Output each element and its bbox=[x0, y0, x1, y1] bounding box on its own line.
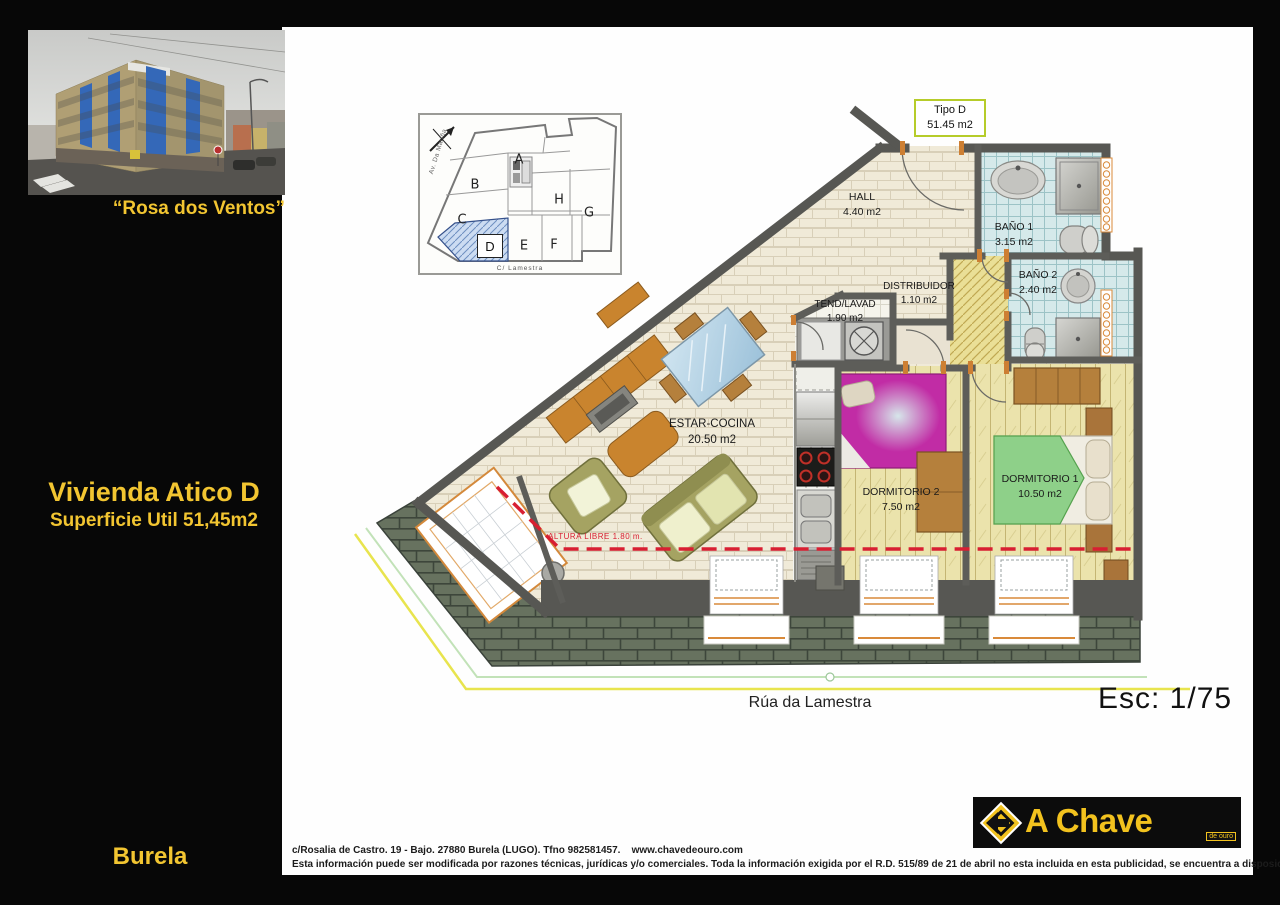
brochure-page: “Rosa dos Ventos” Vivienda Atico D Super… bbox=[0, 0, 1280, 905]
keyplan-street-lamestra: C/ Lamestra bbox=[497, 265, 543, 272]
listing-title-block: Vivienda Atico D Superficie Util 51,45m2 bbox=[30, 476, 278, 532]
distribuidor-name: DISTRIBUIDOR bbox=[883, 280, 955, 294]
street-label: Rúa da Lamestra bbox=[749, 694, 872, 712]
room-label-bano1: BAÑO 1 3.15 m2 bbox=[995, 220, 1034, 249]
distribuidor-area: 1.10 m2 bbox=[883, 294, 955, 308]
keyplan-unit-d: D bbox=[477, 234, 503, 258]
scale-label: Esc: 1/75 bbox=[1098, 682, 1232, 716]
room-label-tendedero: TEND/LAVAD 1.90 m2 bbox=[814, 298, 875, 326]
tipo-box: Tipo D 51.45 m2 bbox=[914, 99, 986, 137]
photo-caption: “Rosa dos Ventos” bbox=[28, 198, 285, 220]
dormitorio2-name: DORMITORIO 2 bbox=[863, 485, 940, 500]
room-label-estar: ESTAR-COCINA 20.50 m2 bbox=[669, 416, 755, 448]
building-photo-art bbox=[28, 30, 285, 195]
bano2-area: 2.40 m2 bbox=[1019, 283, 1058, 298]
room-label-bano2: BAÑO 2 2.40 m2 bbox=[1019, 268, 1058, 297]
tipo-label: Tipo D bbox=[916, 103, 984, 118]
agency-logo: A Chave de ouro bbox=[973, 797, 1241, 848]
bano1-name: BAÑO 1 bbox=[995, 220, 1034, 235]
dormitorio2-area: 7.50 m2 bbox=[863, 500, 940, 515]
keyplan-unit-g: G bbox=[584, 206, 594, 221]
hall-name: HALL bbox=[843, 190, 881, 205]
keyplan-unit-d-letter: D bbox=[485, 239, 494, 254]
hall-area: 4.40 m2 bbox=[843, 205, 881, 220]
keyplan-unit-f: F bbox=[550, 238, 557, 253]
listing-subtitle: Superficie Util 51,45m2 bbox=[30, 510, 278, 532]
logo-tagline: de ouro bbox=[1206, 832, 1236, 841]
listing-title: Vivienda Atico D bbox=[30, 476, 278, 510]
dormitorio1-area: 10.50 m2 bbox=[1002, 487, 1079, 502]
key-diamond-icon bbox=[979, 801, 1023, 845]
altura-libre-note: ALTURA LIBRE 1.80 m. bbox=[548, 532, 643, 541]
building-photo bbox=[28, 30, 285, 195]
tipo-area: 51.45 m2 bbox=[916, 118, 984, 133]
keyplan-unit-h: H bbox=[554, 193, 564, 208]
estar-name: ESTAR-COCINA bbox=[669, 416, 755, 432]
footer-legal: Esta información puede ser modificada po… bbox=[292, 859, 1250, 870]
keyplan-unit-e: E bbox=[520, 239, 528, 254]
keyplan-unit-c: C bbox=[457, 213, 466, 228]
room-label-distribuidor: DISTRIBUIDOR 1.10 m2 bbox=[883, 280, 955, 308]
bano1-area: 3.15 m2 bbox=[995, 235, 1034, 250]
keyplan-unit-a: A bbox=[515, 153, 524, 168]
city-label: Burela bbox=[70, 843, 230, 871]
dormitorio1-name: DORMITORIO 1 bbox=[1002, 472, 1079, 487]
room-label-dormitorio1: DORMITORIO 1 10.50 m2 bbox=[1002, 472, 1079, 501]
bano2-name: BAÑO 2 bbox=[1019, 268, 1058, 283]
room-label-dormitorio2: DORMITORIO 2 7.50 m2 bbox=[863, 485, 940, 514]
keyplan-unit-b: B bbox=[471, 178, 480, 193]
room-label-hall: HALL 4.40 m2 bbox=[843, 190, 881, 219]
location-keyplan: A B C D E F G H Av. Da Mariña C/ Lamestr… bbox=[418, 113, 622, 275]
estar-area: 20.50 m2 bbox=[669, 432, 755, 448]
logo-wordmark: A Chave bbox=[1025, 802, 1152, 840]
tendedero-name: TEND/LAVAD bbox=[814, 298, 875, 312]
tendedero-area: 1.90 m2 bbox=[814, 312, 875, 326]
